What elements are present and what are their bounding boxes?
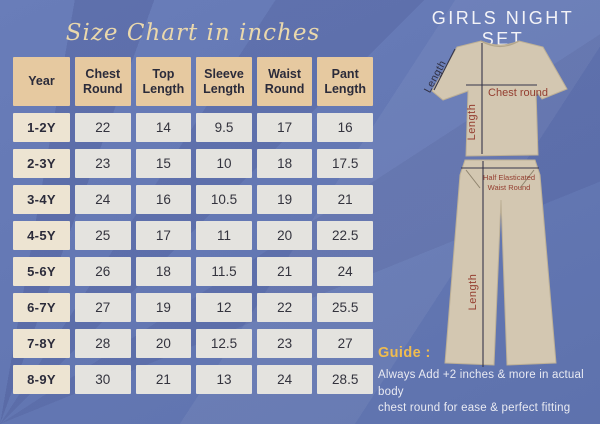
guide-heading: Guide : [378,345,593,361]
value-cell: 24 [257,365,313,394]
value-cell: 14 [136,113,192,142]
garment-diagram: Length Length Chest round Half Elasticat… [420,34,580,374]
value-cell: 24 [75,185,131,214]
column-header: Waist Round [257,57,313,106]
value-cell: 16 [136,185,192,214]
value-cell: 21 [257,257,313,286]
value-cell: 18 [136,257,192,286]
value-cell: 28.5 [317,365,373,394]
value-cell: 18 [257,149,313,178]
value-cell: 22 [257,293,313,322]
value-cell: 19 [136,293,192,322]
value-cell: 30 [75,365,131,394]
value-cell: 22 [75,113,131,142]
page-title: Size Chart in inches [13,20,373,46]
value-cell: 21 [136,365,192,394]
guide-text-line1: Always Add +2 inches & more in actual bo… [378,367,593,400]
size-table: YearChest RoundTop LengthSleeve LengthWa… [13,57,373,394]
value-cell: 24 [317,257,373,286]
value-cell: 13 [196,365,252,394]
value-cell: 25.5 [317,293,373,322]
value-cell: 11.5 [196,257,252,286]
value-cell: 10.5 [196,185,252,214]
value-cell: 10 [196,149,252,178]
year-cell: 3-4Y [13,185,70,214]
column-header: Year [13,57,70,106]
value-cell: 22.5 [317,221,373,250]
waist-label-line1: Half Elasticated [483,173,535,182]
value-cell: 12.5 [196,329,252,358]
waist-label-line2: Waist Round [488,183,531,192]
chest-round-label: Chest round [488,87,548,99]
year-cell: 4-5Y [13,221,70,250]
column-header: Chest Round [75,57,131,106]
value-cell: 23 [257,329,313,358]
value-cell: 15 [136,149,192,178]
value-cell: 27 [317,329,373,358]
column-header: Sleeve Length [196,57,252,106]
value-cell: 12 [196,293,252,322]
year-cell: 6-7Y [13,293,70,322]
size-chart-infographic: Size Chart in inches YearChest RoundTop … [0,0,600,424]
value-cell: 25 [75,221,131,250]
column-header: Pant Length [317,57,373,106]
year-cell: 8-9Y [13,365,70,394]
year-cell: 5-6Y [13,257,70,286]
column-header: Top Length [136,57,192,106]
value-cell: 20 [257,221,313,250]
top-length-label: Length [466,104,478,141]
year-cell: 2-3Y [13,149,70,178]
value-cell: 21 [317,185,373,214]
value-cell: 9.5 [196,113,252,142]
value-cell: 27 [75,293,131,322]
fitting-guide: Guide : Always Add +2 inches & more in a… [378,345,593,417]
value-cell: 26 [75,257,131,286]
value-cell: 11 [196,221,252,250]
value-cell: 23 [75,149,131,178]
guide-text-line2: chest round for ease & perfect fitting [378,400,593,417]
value-cell: 28 [75,329,131,358]
value-cell: 17 [136,221,192,250]
pant-length-label: Length [467,274,479,311]
value-cell: 19 [257,185,313,214]
value-cell: 20 [136,329,192,358]
year-cell: 1-2Y [13,113,70,142]
value-cell: 17.5 [317,149,373,178]
value-cell: 16 [317,113,373,142]
year-cell: 7-8Y [13,329,70,358]
value-cell: 17 [257,113,313,142]
